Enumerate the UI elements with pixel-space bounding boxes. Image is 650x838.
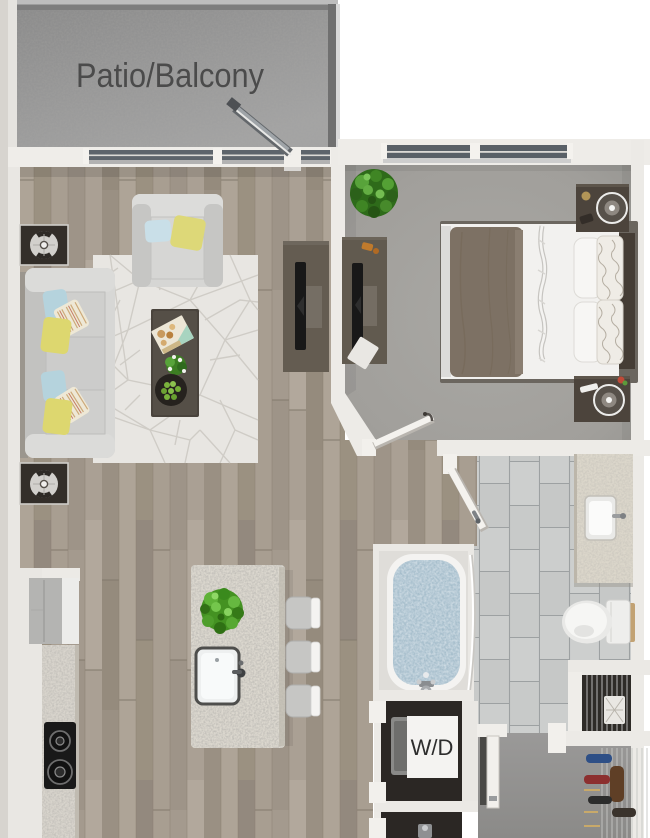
- svg-text:W/D: W/D: [411, 735, 454, 760]
- svg-text:Patio/Balcony: Patio/Balcony: [76, 57, 264, 95]
